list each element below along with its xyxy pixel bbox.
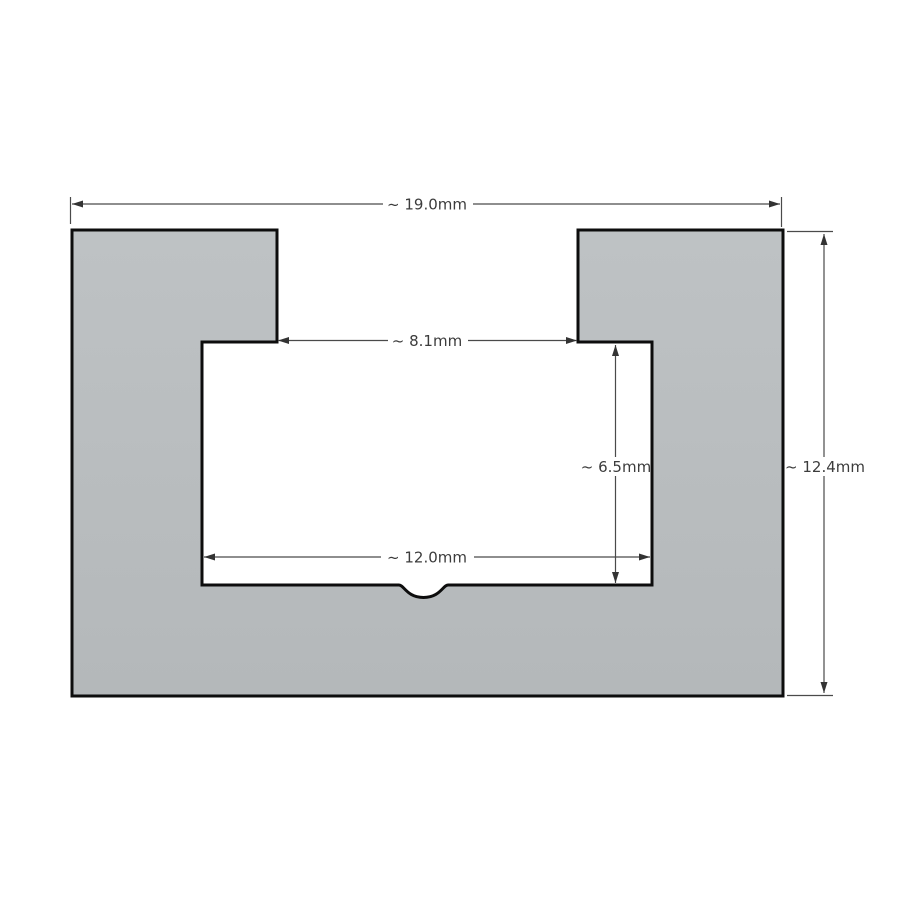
dim-overall-height: ~ 12.4mm (785, 232, 865, 696)
arrowhead-down-icon (612, 572, 619, 583)
arrowhead-right-icon (566, 337, 577, 344)
dim-label-cavity-width: ~ 12.0mm (387, 549, 467, 567)
arrowhead-up-icon (612, 345, 619, 356)
drawing-page: ~ 19.0mm ~ 8.1mm ~ 6.5mm ~ 12.0mm (0, 0, 900, 900)
dim-slot-opening: ~ 8.1mm (278, 331, 577, 350)
dim-overall-width: ~ 19.0mm (71, 194, 782, 227)
arrowhead-right-icon (639, 554, 650, 561)
arrowhead-down-icon (821, 682, 828, 693)
arrowhead-left-icon (278, 337, 289, 344)
cad-drawing-canvas: ~ 19.0mm ~ 8.1mm ~ 6.5mm ~ 12.0mm (0, 0, 900, 900)
arrowhead-up-icon (821, 234, 828, 245)
dim-label-overall-height: ~ 12.4mm (785, 458, 865, 476)
part-cross-section (72, 230, 783, 696)
dim-cavity-depth: ~ 6.5mm (581, 345, 651, 583)
arrowhead-left-icon (72, 201, 83, 208)
dim-label-cavity-depth: ~ 6.5mm (581, 458, 651, 476)
arrowhead-left-icon (204, 554, 215, 561)
arrowhead-right-icon (769, 201, 780, 208)
dim-cavity-width: ~ 12.0mm (204, 548, 650, 567)
dim-label-slot-opening: ~ 8.1mm (392, 332, 462, 350)
dim-label-overall-width: ~ 19.0mm (387, 196, 467, 214)
